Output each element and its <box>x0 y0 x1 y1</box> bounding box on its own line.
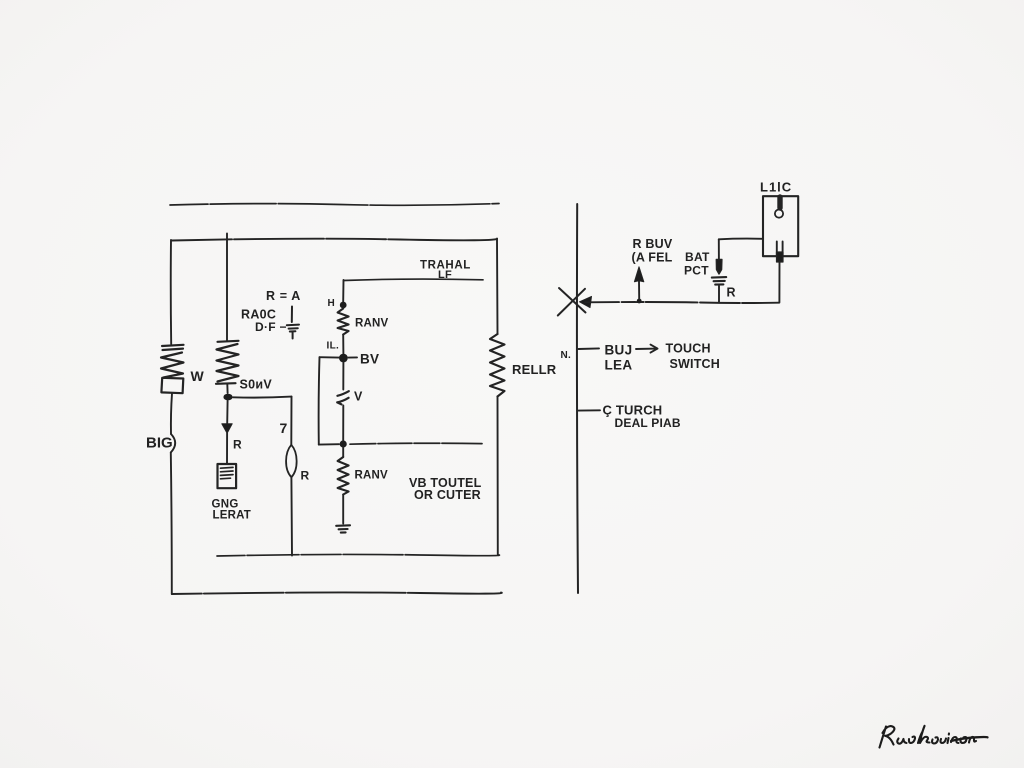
svg-text:SWITCH: SWITCH <box>670 357 721 371</box>
svg-text:W: W <box>191 368 205 384</box>
svg-text:BUJ: BUJ <box>605 343 633 358</box>
svg-text:TOUCH: TOUCH <box>666 342 711 356</box>
svg-text:RELLR: RELLR <box>512 362 557 377</box>
svg-text:N.: N. <box>561 350 572 361</box>
svg-text:BIG: BIG <box>146 435 173 452</box>
svg-text:DEAL PIAВ: DEAL PIAВ <box>615 416 681 430</box>
svg-text:PCT: PCT <box>684 264 709 278</box>
svg-text:7: 7 <box>280 420 288 436</box>
svg-text:V: V <box>354 390 363 404</box>
svg-text:IL.: IL. <box>327 341 340 352</box>
svg-text:RANV: RANV <box>355 318 389 330</box>
svg-text:LEA: LEA <box>605 358 633 373</box>
svg-text:BV: BV <box>360 352 379 367</box>
svg-text:D·F −: D·F − <box>255 320 287 334</box>
svg-text:BAT: BAT <box>685 250 710 264</box>
svg-text:S0иV: S0иV <box>240 378 273 392</box>
svg-text:R: R <box>727 286 736 300</box>
svg-text:R: R <box>301 469 310 483</box>
svg-text:R = A: R = A <box>266 289 301 303</box>
svg-text:OR CUTER: OR CUTER <box>414 488 481 502</box>
svg-text:LF: LF <box>438 269 452 281</box>
svg-text:LERAT: LERAT <box>213 510 251 522</box>
svg-text:(A FEL: (A FEL <box>632 251 673 265</box>
svg-text:H: H <box>328 298 336 309</box>
svg-text:R: R <box>233 438 242 452</box>
svg-text:R BUV: R BUV <box>633 237 673 251</box>
svg-text:RANV: RANV <box>355 470 389 482</box>
svg-text:L1lC: L1lC <box>760 180 792 195</box>
